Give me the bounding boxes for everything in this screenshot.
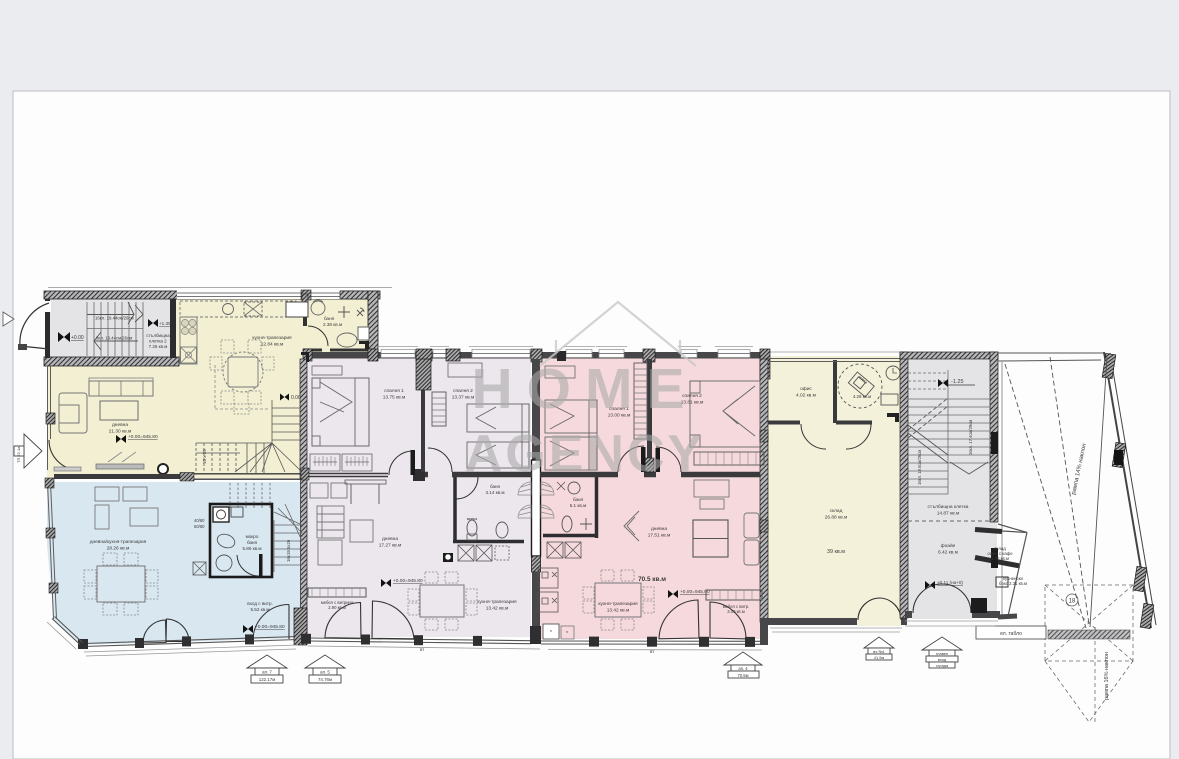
svg-text:ап. 7: ап. 7 <box>262 670 272 675</box>
svg-text:дневна: дневна <box>382 537 398 542</box>
svg-text:13.42 кв.м: 13.42 кв.м <box>607 608 630 614</box>
svg-text:вход: вход <box>938 657 947 662</box>
svg-text:баня: баня <box>247 540 258 545</box>
svg-text:16кл. 19.44см/26см: 16кл. 19.44см/26см <box>95 316 134 321</box>
svg-text:5.86 кв.м: 5.86 кв.м <box>242 546 261 551</box>
svg-text:стълбищна: стълбищна <box>146 333 170 338</box>
svg-text:41.5м: 41.5м <box>874 655 885 660</box>
svg-text:ТП.22.1а: ТП.22.1а <box>16 446 21 463</box>
svg-text:13.75 кв.м: 13.75 кв.м <box>383 395 406 401</box>
svg-text:спалня 2: спалня 2 <box>453 388 473 394</box>
svg-text:кухня-трапезария: кухня-трапезария <box>598 602 638 607</box>
svg-text:мокро: мокро <box>246 534 259 539</box>
svg-text:рампа 16% наклон: рампа 16% наклон <box>1104 652 1110 700</box>
svg-text:6.42 кв.м: 6.42 кв.м <box>938 550 958 556</box>
svg-text:HOME: HOME <box>472 357 699 421</box>
svg-text:*: * <box>566 631 568 637</box>
svg-text:70.5 кв.м: 70.5 кв.м <box>638 576 666 583</box>
svg-text:дневна: дневна <box>112 423 128 428</box>
svg-text:фоайе: фоайе <box>941 542 956 549</box>
svg-text:*: * <box>550 630 552 636</box>
svg-text:60/60: 60/60 <box>194 524 205 529</box>
svg-text:74.76м: 74.76м <box>318 677 332 682</box>
svg-text:баня: баня <box>573 497 584 502</box>
svg-text:+1.35: +1.35 <box>159 321 171 326</box>
svg-text:70.5м: 70.5м <box>737 673 748 678</box>
svg-text:26.88 кв.м: 26.88 кв.м <box>825 515 848 521</box>
svg-text:16кл. 17.4см/29см: 16кл. 17.4см/29см <box>968 420 973 455</box>
svg-text:16х18.5х26: 16х18.5х26 <box>286 539 291 562</box>
svg-text:7.26 кв.м: 7.26 кв.м <box>149 344 168 349</box>
svg-text:-1.25: -1.25 <box>951 379 964 385</box>
svg-text:40/60: 40/60 <box>194 518 205 523</box>
svg-text:баня: баня <box>490 484 501 489</box>
svg-text:21.30 кв.м: 21.30 кв.м <box>109 429 132 435</box>
svg-text:дневна/кухня-трапезария: дневна/кухня-трапезария <box>90 539 147 545</box>
svg-text:122.17м: 122.17м <box>259 677 275 682</box>
svg-text:2.38 кв.м: 2.38 кв.м <box>323 322 342 327</box>
svg-text:10 х 25: 10 х 25 <box>202 449 207 464</box>
svg-text:ел. табло: ел. табло <box>1000 631 1022 637</box>
svg-text:4.02 кв.м: 4.02 кв.м <box>796 393 816 399</box>
svg-text:главен: главен <box>936 651 948 656</box>
svg-text:14.87 кв.м: 14.87 кв.м <box>937 511 960 517</box>
svg-text:кухня-трапезария: кухня-трапезария <box>252 336 292 341</box>
svg-text:17.27 кв.м: 17.27 кв.м <box>379 543 402 549</box>
svg-text:8кл. 19.44см/26см: 8кл. 19.44см/26см <box>96 336 132 341</box>
svg-text:баня: баня <box>324 316 335 321</box>
svg-text:+0.00=945.80: +0.00=945.80 <box>393 578 423 584</box>
svg-text:3.00 кв.м: 3.00 кв.м <box>727 609 745 614</box>
svg-text:вход с витр.: вход с витр. <box>247 601 273 606</box>
svg-text:+0.00=945.80: +0.00=945.80 <box>255 624 285 630</box>
svg-text:сграда: сграда <box>936 663 949 668</box>
svg-text:мивка: мивка <box>467 517 478 521</box>
svg-text:5.52 кв.м: 5.52 кв.м <box>250 607 269 612</box>
svg-text:офис: офис <box>800 386 812 392</box>
svg-text:склад: склад <box>830 509 843 514</box>
svg-text:дневна: дневна <box>651 527 667 532</box>
svg-text:5.1 кв.м: 5.1 кв.м <box>570 503 587 508</box>
svg-text:39 кв.м: 39 кв.м <box>827 549 845 555</box>
svg-text:спалня 1: спалня 1 <box>384 388 404 394</box>
svg-text:12.84 кв.м: 12.84 кв.м <box>261 342 284 348</box>
svg-text:AGENCY: AGENCY <box>465 425 705 483</box>
svg-text:16кл. 18.5см/26см: 16кл. 18.5см/26см <box>917 450 922 485</box>
svg-text:0.00: 0.00 <box>291 395 301 401</box>
svg-text:3.14 кв.м: 3.14 кв.м <box>485 490 504 495</box>
svg-text:2.90 кв.м: 2.90 кв.м <box>328 605 346 610</box>
svg-text:кухня-трапезария: кухня-трапезария <box>477 600 517 605</box>
svg-text:13.42 кв.м: 13.42 кв.м <box>486 606 509 612</box>
svg-text:+0.11 (на+0): +0.11 (на+0) <box>937 580 963 585</box>
svg-text:ап. 4: ап. 4 <box>738 666 748 671</box>
svg-text:17.51 кв.м: 17.51 кв.м <box>648 533 671 539</box>
svg-text:вх.№1: вх.№1 <box>873 649 886 654</box>
svg-text:1.70 кв.м: 1.70 кв.м <box>991 556 1009 561</box>
svg-text:клетка 2: клетка 2 <box>149 339 167 344</box>
svg-text:ап. 5: ап. 5 <box>320 670 330 675</box>
svg-text:28.26 кв.м: 28.26 кв.м <box>107 546 130 552</box>
svg-text:стълбищна клетка: стълбищна клетка <box>928 504 969 510</box>
svg-text:4.28 кв.м: 4.28 кв.м <box>853 394 871 399</box>
svg-text:18: 18 <box>1069 599 1076 605</box>
svg-text:+0.00: +0.00 <box>71 335 84 341</box>
svg-text:+0.00=945.80: +0.00=945.80 <box>128 434 158 440</box>
svg-text:+0.00=945.00: +0.00=945.00 <box>680 589 710 595</box>
svg-text:бокс 2.31 кв.м: бокс 2.31 кв.м <box>999 581 1027 586</box>
